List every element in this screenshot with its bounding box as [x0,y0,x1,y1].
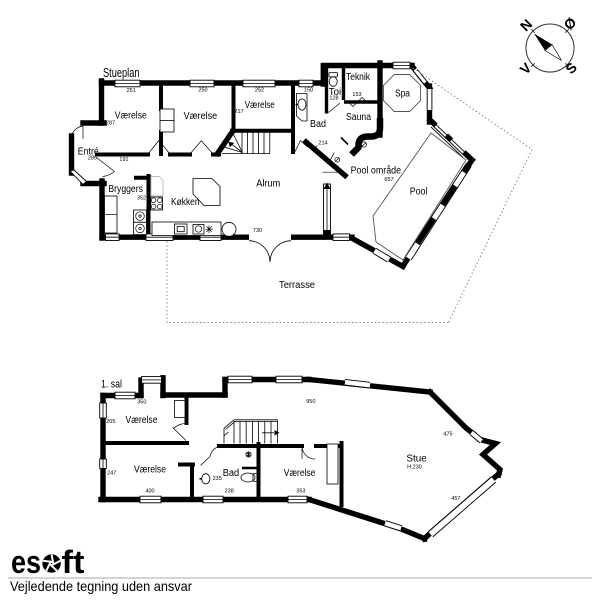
svg-text:H:230: H:230 [407,465,422,471]
svg-text:247: 247 [107,470,116,476]
svg-text:353: 353 [296,488,305,494]
svg-text:Terrasse: Terrasse [279,280,315,291]
svg-text:Bryggers: Bryggers [108,184,142,195]
svg-text:250: 250 [198,88,207,94]
svg-text:214: 214 [318,140,327,146]
svg-text:Vejledende tegning uden ansvar: Vejledende tegning uden ansvar [10,578,192,594]
svg-text:400: 400 [145,488,154,494]
svg-text:352: 352 [137,196,146,202]
svg-text:238: 238 [225,488,234,494]
svg-text:Sauna: Sauna [346,112,371,123]
svg-text:Bad: Bad [223,468,240,479]
svg-text:657: 657 [384,177,393,183]
svg-text:Stueplan: Stueplan [103,66,140,80]
svg-text:Værelse: Værelse [126,415,158,426]
svg-text:475: 475 [443,431,452,437]
svg-text:Værelse: Værelse [184,111,218,122]
svg-text:128: 128 [329,96,338,102]
svg-text:ft: ft [62,544,85,580]
svg-text:285: 285 [88,155,97,161]
svg-text:153: 153 [352,92,361,98]
svg-text:730: 730 [253,228,262,234]
svg-text:251: 251 [127,88,136,94]
svg-text:350: 350 [137,400,146,406]
svg-text:Værelse: Værelse [245,100,275,111]
svg-text:1. sal: 1. sal [101,379,122,391]
svg-text:191: 191 [119,157,128,163]
svg-text:150: 150 [304,88,313,94]
svg-text:457: 457 [451,496,460,502]
svg-text:Værelse: Værelse [134,465,166,476]
svg-text:Spa: Spa [395,89,410,100]
svg-text:217: 217 [234,109,243,115]
svg-text:Værelse: Værelse [284,468,316,479]
svg-text:Køkken: Køkken [171,197,200,208]
svg-text:Alrum: Alrum [256,179,280,190]
svg-text:287: 287 [106,121,115,127]
svg-text:es: es [11,544,41,580]
svg-text:Pool område: Pool område [351,165,402,177]
svg-text:235: 235 [213,476,222,482]
svg-text:Teknik: Teknik [346,72,371,83]
svg-text:205: 205 [106,419,115,425]
svg-text:Værelse: Værelse [115,111,147,122]
svg-text:252: 252 [255,88,264,94]
svg-text:Bad: Bad [310,119,326,130]
svg-text:950: 950 [306,399,315,405]
svg-text:Stue: Stue [406,454,427,465]
svg-text:Pool: Pool [410,187,428,198]
